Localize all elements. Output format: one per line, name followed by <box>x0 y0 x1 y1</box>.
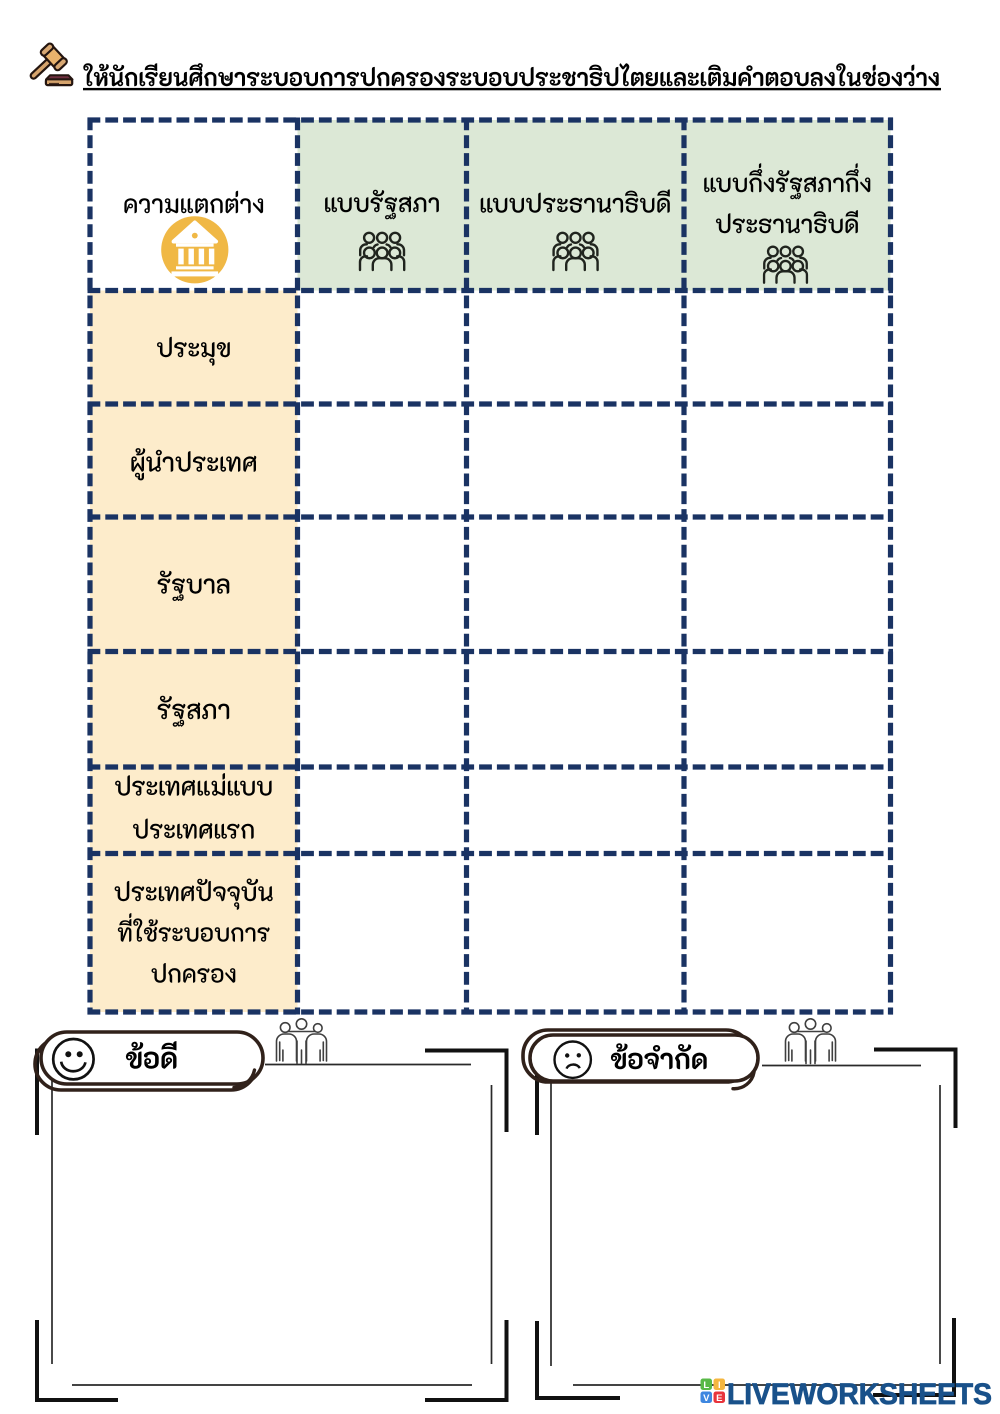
svg-text:LIVEWORKSHEETS: LIVEWORKSHEETS <box>727 1378 992 1411</box>
svg-text:L: L <box>703 1380 709 1391</box>
svg-text:V: V <box>703 1393 710 1404</box>
svg-text:I: I <box>718 1380 721 1391</box>
svg-text:E: E <box>716 1393 722 1404</box>
